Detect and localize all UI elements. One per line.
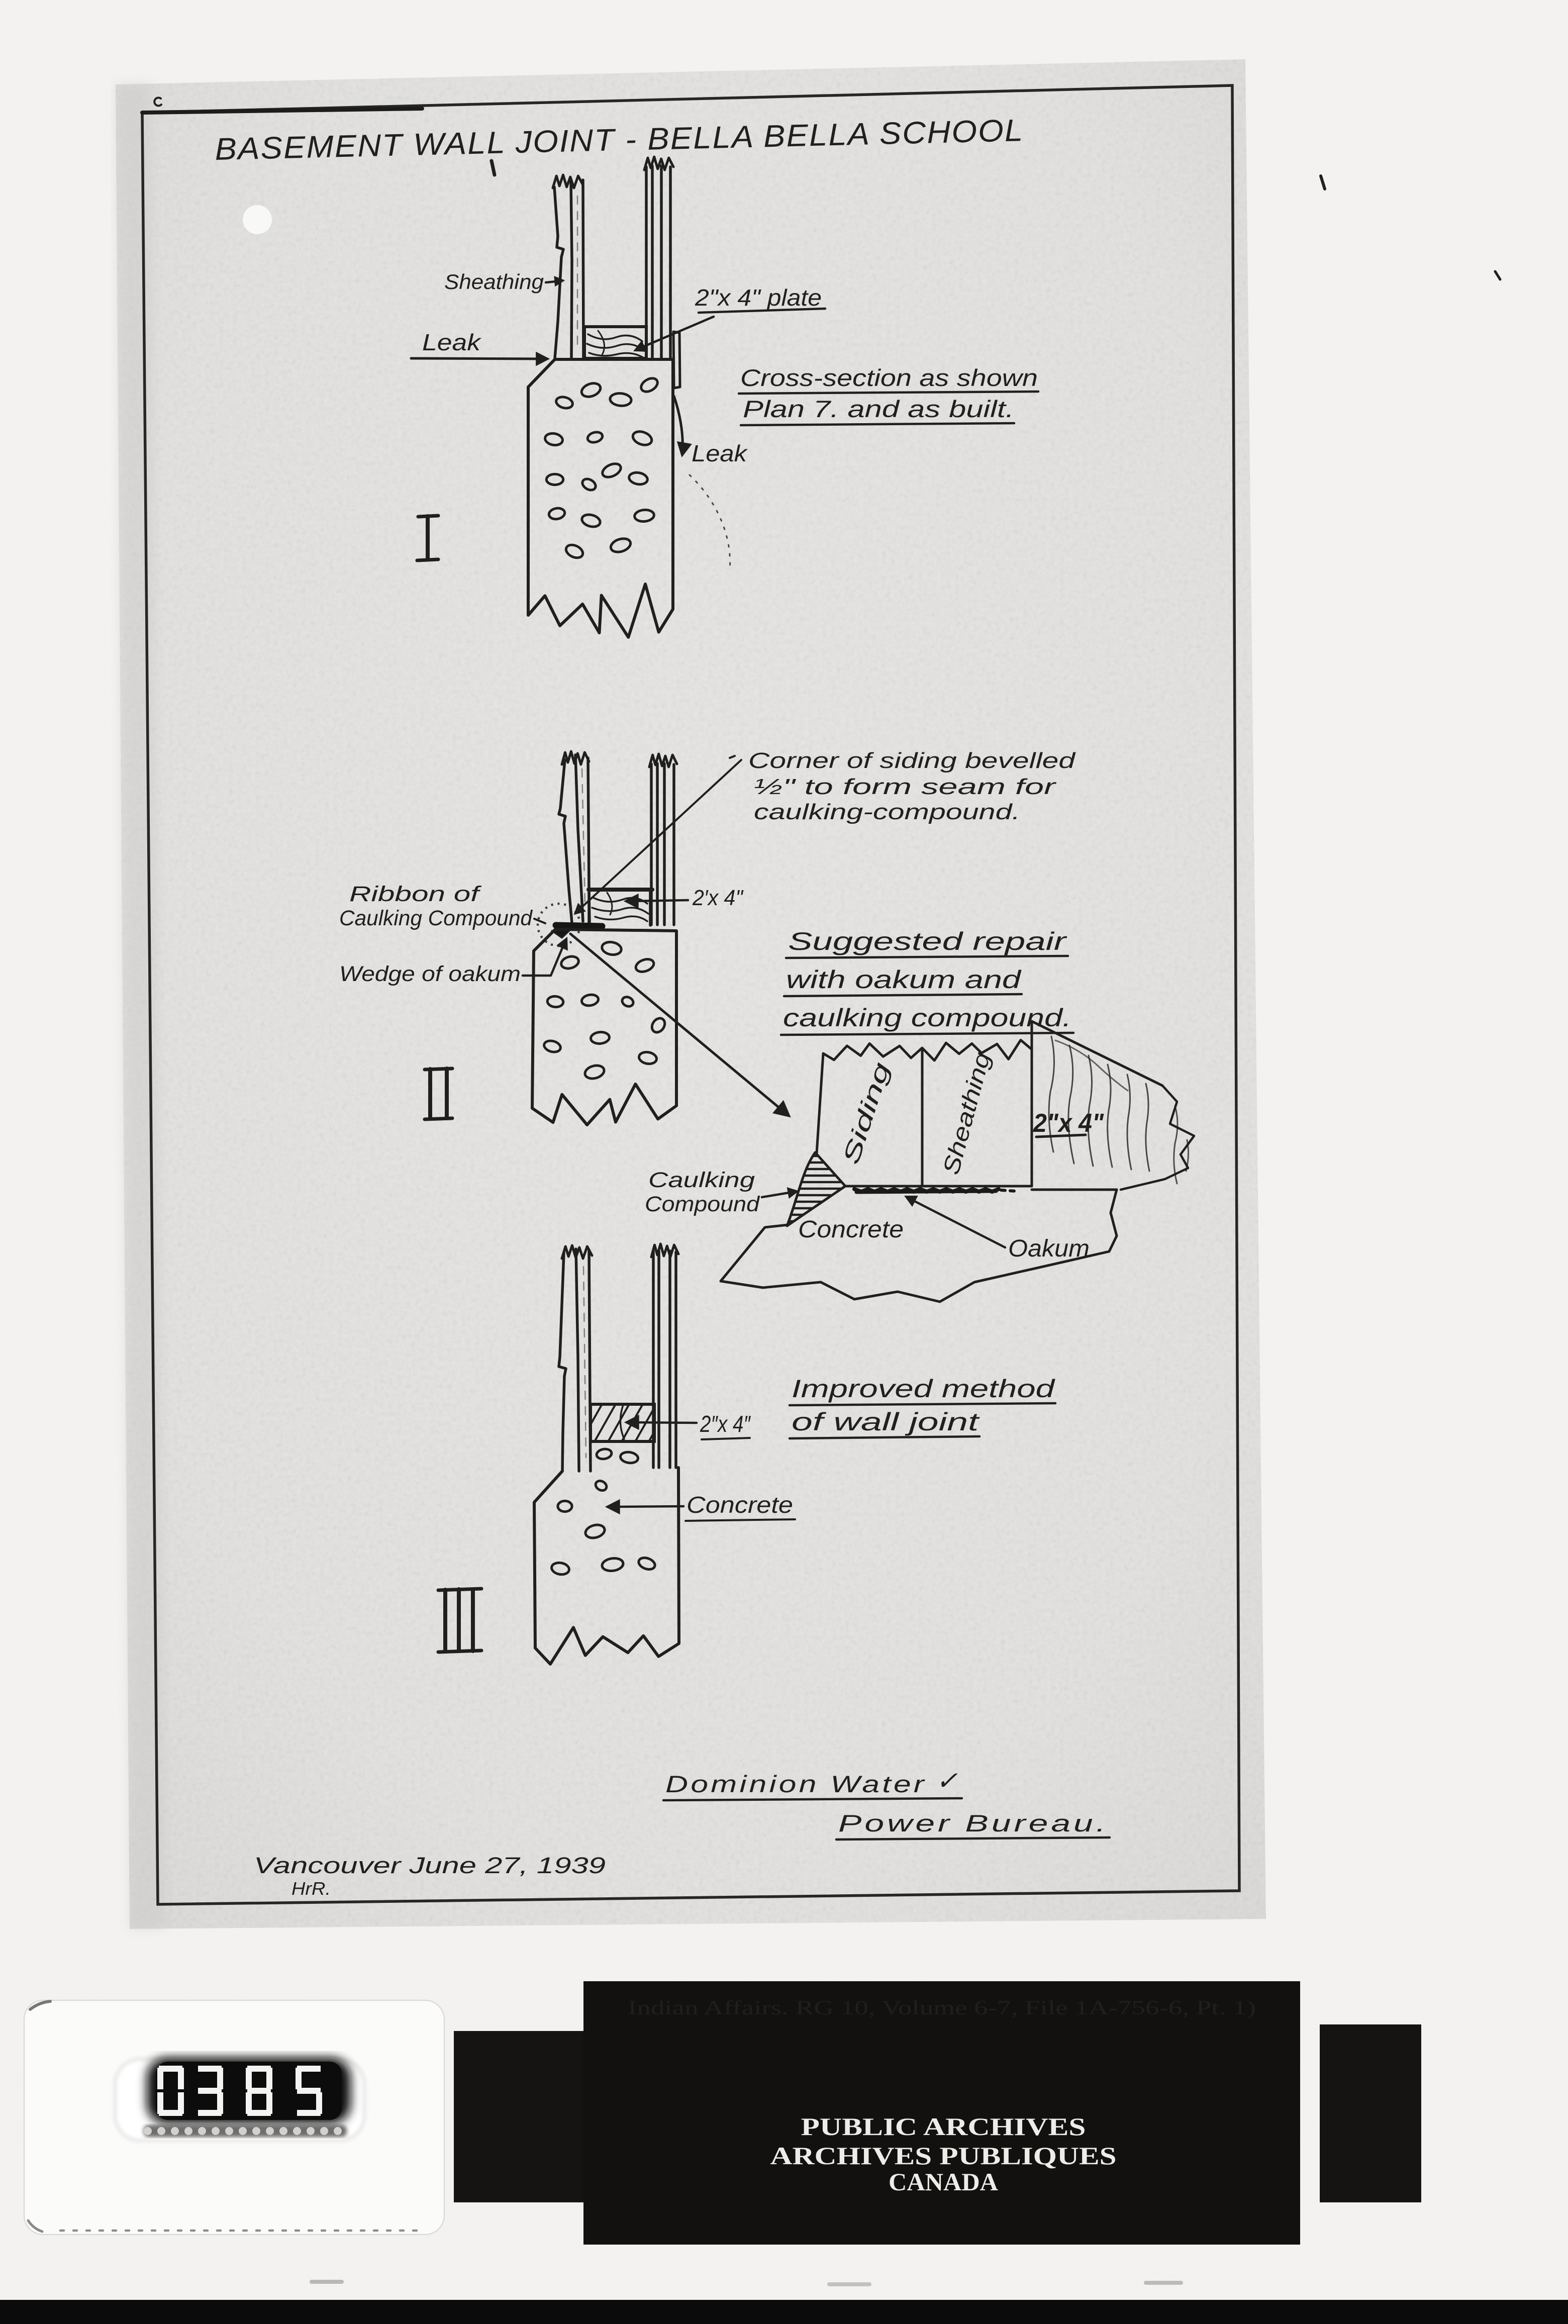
svg-text:Power Bureau.: Power Bureau. <box>838 1810 1109 1836</box>
svg-text:Vancouver June 27, 1939: Vancouver June 27, 1939 <box>254 1853 606 1878</box>
svg-text:Cross-section as shown: Cross-section as shown <box>740 364 1038 391</box>
svg-text:Sheathing: Sheathing <box>444 270 544 294</box>
svg-text:ARCHIVES PUBLIQUES: ARCHIVES PUBLIQUES <box>770 2142 1117 2170</box>
svg-text:CANADA: CANADA <box>889 2168 998 2196</box>
svg-text:Caulking: Caulking <box>648 1168 755 1192</box>
svg-text:2"x 4": 2"x 4" <box>1033 1109 1104 1138</box>
svg-text:PUBLIC ARCHIVES: PUBLIC ARCHIVES <box>801 2112 1086 2141</box>
svg-text:Improved method: Improved method <box>792 1375 1056 1403</box>
svg-text:Leak: Leak <box>422 329 481 355</box>
svg-text:Oakum: Oakum <box>1008 1235 1090 1262</box>
svg-text:Corner of siding bevelled: Corner of siding bevelled <box>748 748 1076 773</box>
svg-text:2′x 4": 2′x 4" <box>692 886 744 910</box>
svg-text:Compound: Compound <box>645 1192 760 1216</box>
svg-text:caulking-compound.: caulking-compound. <box>754 800 1020 824</box>
svg-text:Leak: Leak <box>692 440 748 466</box>
svg-text:2″x 4″: 2″x 4″ <box>700 1411 751 1437</box>
svg-text:Dominion Water: Dominion Water <box>665 1771 927 1797</box>
svg-text:of wall joint: of wall joint <box>792 1408 980 1436</box>
svg-text:Indian Affairs. RG 10, Volume: Indian Affairs. RG 10, Volume 6-7, File … <box>628 1996 1256 2019</box>
svg-text:Wedge of oakum: Wedge of oakum <box>339 962 521 986</box>
svg-text:Ribbon of: Ribbon of <box>349 882 482 906</box>
svg-text:Concrete: Concrete <box>687 1492 793 1518</box>
svg-text:Plan 7. and as built.: Plan 7. and as built. <box>743 396 1014 422</box>
svg-text:HrR.: HrR. <box>291 1878 331 1899</box>
svg-text:with oakum and: with oakum and <box>786 965 1022 994</box>
svg-text:Concrete: Concrete <box>798 1216 904 1243</box>
svg-text:✓: ✓ <box>936 1767 958 1795</box>
svg-text:½" to form seam for: ½" to form seam for <box>754 774 1057 799</box>
svg-text:caulking compound.: caulking compound. <box>783 1004 1071 1032</box>
svg-text:Suggested repair: Suggested repair <box>788 927 1067 955</box>
svg-text:2"x 4" plate: 2"x 4" plate <box>695 284 822 311</box>
svg-text:Caulking Compound: Caulking Compound <box>339 906 533 930</box>
